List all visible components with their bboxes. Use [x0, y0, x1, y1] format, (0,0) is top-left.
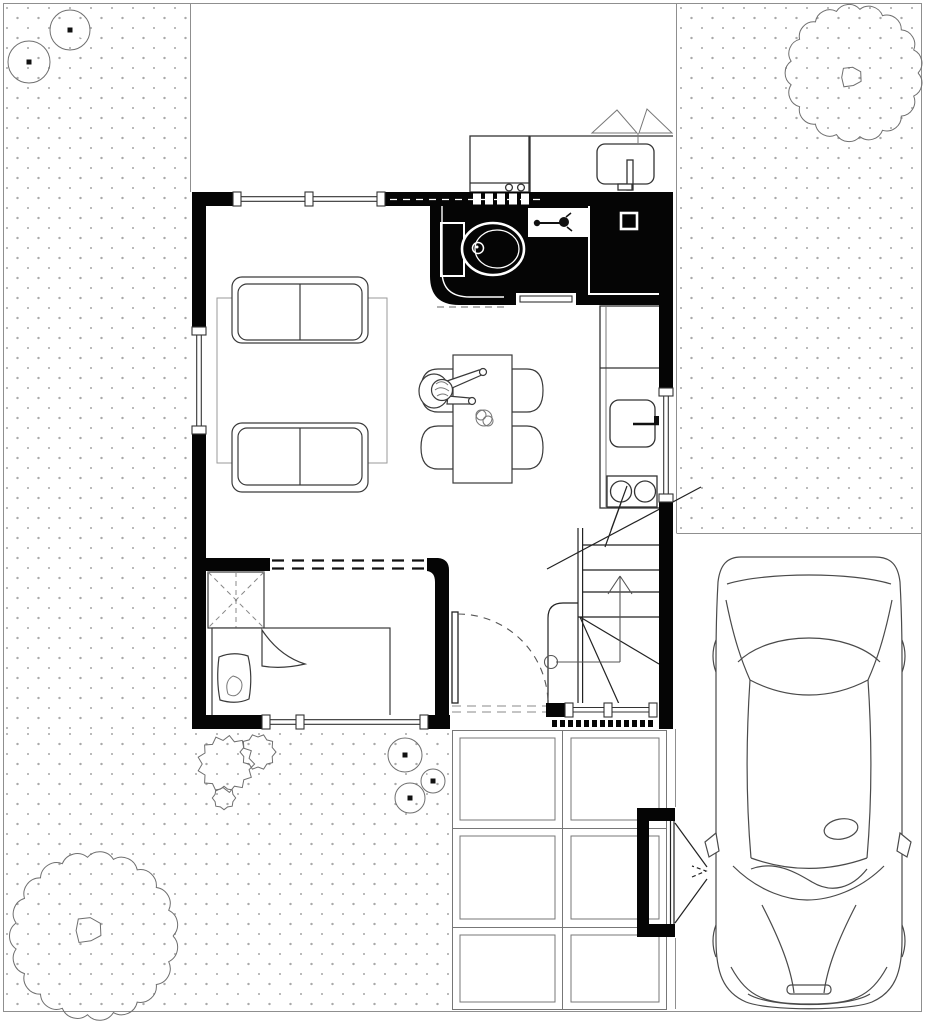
wall-bedroom-north: [192, 558, 270, 571]
wall-bedroom-east: [435, 578, 449, 715]
dining-chair: [512, 426, 543, 469]
tree-large-bottom-left: [9, 852, 177, 1021]
kitchen: [600, 306, 660, 508]
dining-set: [419, 355, 543, 483]
window-bedroom-south: [262, 715, 428, 729]
tree-core-top-right: [842, 67, 861, 87]
paver-slab: [460, 738, 555, 820]
basin-drain: [618, 184, 632, 190]
dining-chair: [512, 369, 543, 412]
gate-swing: [675, 823, 707, 867]
dining-chair: [421, 426, 453, 469]
person-head: [432, 380, 453, 401]
living-room: [217, 277, 543, 492]
shower-drain: [621, 213, 637, 229]
bush-spiky-3: [212, 786, 235, 809]
gate: [637, 808, 707, 937]
wall-entry-block: [546, 703, 566, 717]
paver-path: [453, 731, 667, 1010]
plan-drawing: [0, 0, 929, 1024]
wall-west: [192, 192, 206, 729]
front-door-leaf: [452, 612, 458, 703]
car-body: [716, 557, 902, 1009]
front-door-threshold: [452, 706, 546, 712]
front-door-swing: [458, 614, 548, 704]
entry-sill: [565, 703, 657, 717]
tree-core-bottom-left: [76, 918, 101, 943]
bedroom-cased-opening: [272, 561, 426, 569]
window-living-north: [233, 192, 385, 206]
bedroom: [208, 572, 390, 716]
tree-large-top-right: [785, 4, 922, 141]
entry-threshold-dots: [552, 720, 653, 727]
sofa-bottom: [232, 423, 368, 492]
bush-notched-1: [50, 10, 90, 50]
bush-spiky-2: [240, 735, 276, 769]
paver-slab: [460, 836, 555, 919]
burner: [611, 481, 632, 502]
laundry-patio: [470, 109, 673, 192]
bush-spiky-1: [198, 736, 254, 793]
bathroom-sliding-door: [520, 296, 572, 302]
sink-tap: [534, 220, 540, 226]
stair-enclosure: [548, 603, 578, 704]
bathroom: [430, 192, 667, 305]
sofa-top: [232, 277, 368, 343]
car: [705, 557, 911, 1009]
pillow: [218, 654, 251, 703]
burner: [635, 481, 656, 502]
stair-winder: [580, 617, 619, 704]
paver-slab: [571, 738, 659, 820]
washer-knob: [518, 184, 525, 191]
bush-notched-2: [8, 41, 50, 83]
bush-notched-3: [388, 738, 422, 772]
washer-knob: [506, 184, 513, 191]
window-kitchen-east: [659, 388, 673, 502]
bush-notched-4: [421, 769, 445, 793]
floor-plan-canvas: [0, 0, 929, 1024]
window-living-west: [192, 327, 206, 434]
laundry-basin: [597, 144, 654, 184]
bush-notched-5: [395, 783, 425, 813]
paver-slab: [571, 935, 659, 1002]
stairs: [545, 486, 702, 704]
paver-slab: [460, 935, 555, 1002]
